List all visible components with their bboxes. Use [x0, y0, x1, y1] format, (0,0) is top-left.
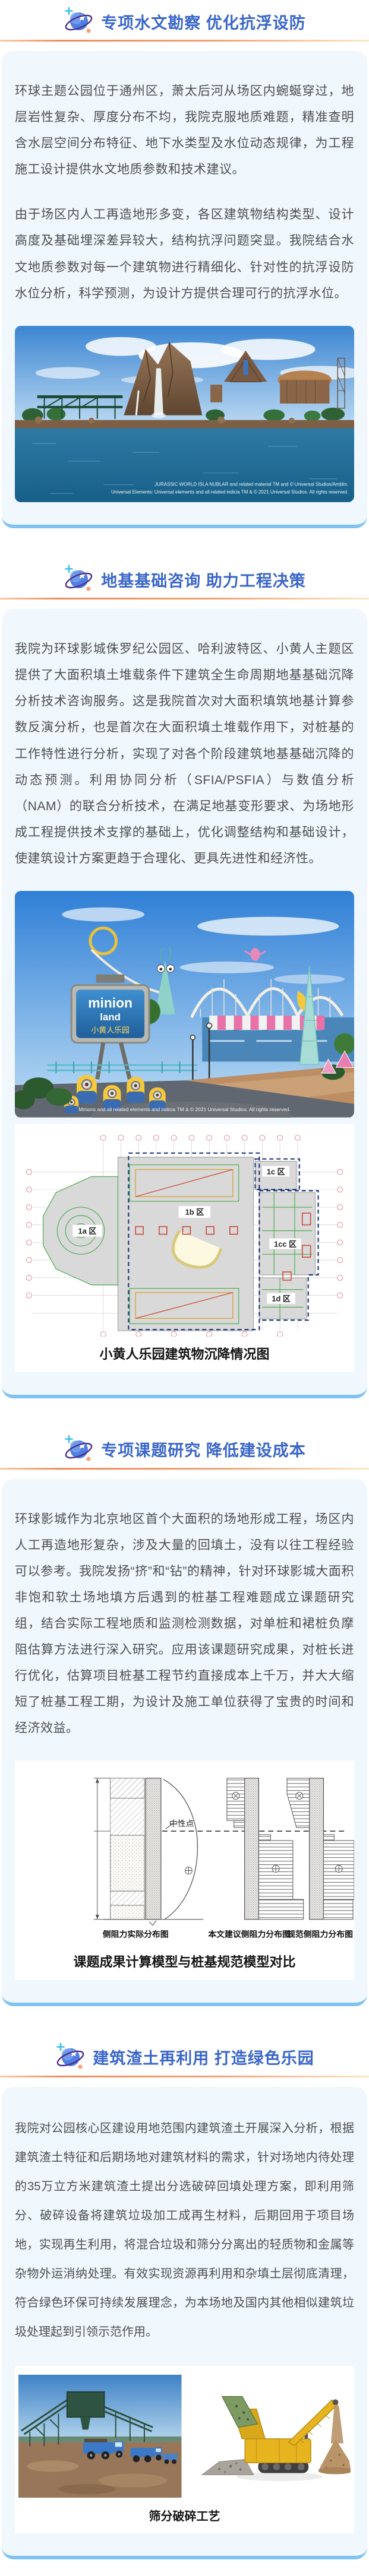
section-foundation: 地基基础咨询 助力工程决策 我院为环球影城侏罗纪公园区、哈利波特区、小黄人主题区…	[0, 563, 369, 1398]
settlement-plan-figure: 1a 区 1b 区 1c 区 1cc 区 1d 区 小黄人乐园建筑物沉降情况图	[15, 1124, 354, 1372]
content-card: 我院对公园核心区建设用地范围内建筑渣土开展深入分析，根据建筑渣土特征和后期场地对…	[2, 2087, 367, 2559]
figure-caption: 课题成果计算模型与桩基规范模型对比	[15, 1952, 354, 1971]
section-header: 专项水文勘察 优化抗浮设防	[0, 5, 369, 38]
section-divider	[0, 598, 369, 599]
photo-watermark: Minions and all related elements and ind…	[78, 1106, 290, 1112]
section-research: 专项课题研究 降低建设成本 环球影城作为北京地区首个大面积的场地形成工程，场区内…	[0, 1433, 369, 2006]
paragraph: 我院对公园核心区建设用地范围内建筑渣土开展深入分析，根据建筑渣土特征和后期场地对…	[15, 2114, 354, 2347]
plan-label-1c: 1c 区	[267, 1167, 285, 1176]
process-figure: 筛分破碎工艺	[15, 2366, 354, 2533]
plan-label-1cc: 1cc 区	[274, 1239, 297, 1248]
screening-site-photo	[18, 2373, 182, 2499]
plan-label-1d: 1d 区	[272, 1294, 291, 1303]
section-header: 建筑渣土再利用 打造绿色乐园	[0, 2041, 369, 2074]
minion-sign-line1: minion	[88, 995, 133, 1010]
section-divider	[0, 2076, 369, 2077]
paragraph: 我院为环球影城侏罗纪公园区、哈利波特区、小黄人主题区提供了大面积填土堆载条件下建…	[15, 636, 354, 872]
page-bottom-spacer	[0, 2559, 369, 2576]
planet-icon	[63, 6, 94, 37]
figure-caption: 小黄人乐园建筑物沉降情况图	[15, 1344, 354, 1363]
section-hydrology: 专项水文勘察 优化抗浮设防 环球主题公园位于通州区，萧太后河从场区内蜿蜒穿过，地…	[0, 5, 369, 528]
paragraph: 环球主题公园位于通州区，萧太后河从场区内蜿蜒穿过，地层岩性复杂、厚度分布不均，我…	[15, 78, 354, 183]
paragraph: 环球影城作为北京地区首个大面积的场地形成工程，场区内人工再造地形复杂，涉及大量的…	[15, 1506, 354, 1742]
planet-icon	[55, 2042, 86, 2073]
jurassic-park-photo: JURASSIC WORLD ISLA NUBLAR and related m…	[15, 326, 354, 502]
settlement-plan-drawing: 1a 区 1b 区 1c 区 1cc 区 1d 区	[15, 1131, 354, 1337]
figure-caption: 筛分破碎工艺	[15, 2507, 354, 2524]
planet-icon	[63, 1434, 94, 1465]
plan-label-1b: 1b 区	[185, 1207, 204, 1216]
section-divider	[0, 40, 369, 42]
section-title: 地基基础咨询 助力工程决策	[101, 568, 306, 591]
section-title: 建筑渣土再利用 打造绿色乐园	[93, 2045, 314, 2069]
paragraph: 由于场区内人工再造地形多变，各区建筑物结构类型、设计高度及基础埋深差异较大，结构…	[15, 202, 354, 306]
pile-model-figure: 中性点	[15, 1760, 354, 1979]
minion-sign-line3: 小黄人乐园	[91, 1026, 129, 1035]
content-card: 环球主题公园位于通州区，萧太后河从场区内蜿蜒穿过，地层岩性复杂、厚度分布不均，我…	[2, 51, 367, 528]
section-header: 专项课题研究 降低建设成本	[0, 1433, 369, 1466]
section-recycling: 建筑渣土再利用 打造绿色乐园 我院对公园核心区建设用地范围内建筑渣土开展深入分析…	[0, 2041, 369, 2559]
plan-label-1a: 1a 区	[78, 1226, 97, 1235]
section-title: 专项课题研究 降低建设成本	[101, 1438, 306, 1461]
pile-model-diagram: 中性点	[15, 1768, 354, 1944]
subcaption-proposed: 本文建议侧阻力分布图	[208, 1930, 291, 1939]
subcaption-actual: 侧阻力实际分布图	[103, 1930, 169, 1939]
subcaption-code: 规范侧阻力分布图	[287, 1930, 353, 1939]
minion-land-photo: minion land 小黄人乐园	[15, 891, 354, 1118]
crusher-render	[188, 2373, 351, 2499]
minion-sign-line2: land	[100, 1011, 121, 1023]
section-header: 地基基础咨询 助力工程决策	[0, 563, 369, 596]
photo-watermark-line2: Universal Elements: Universal elements a…	[111, 489, 348, 494]
content-card: 环球影城作为北京地区首个大面积的场地形成工程，场区内人工再造地形复杂，涉及大量的…	[2, 1479, 367, 2006]
planet-icon	[63, 564, 94, 595]
section-divider	[0, 1468, 369, 1470]
photo-watermark-line1: JURASSIC WORLD ISLA NUBLAR and related m…	[154, 481, 348, 487]
content-card: 我院为环球影城侏罗纪公园区、哈利波特区、小黄人主题区提供了大面积填土堆载条件下建…	[2, 609, 367, 1398]
section-title: 专项水文勘察 优化抗浮设防	[101, 10, 306, 33]
